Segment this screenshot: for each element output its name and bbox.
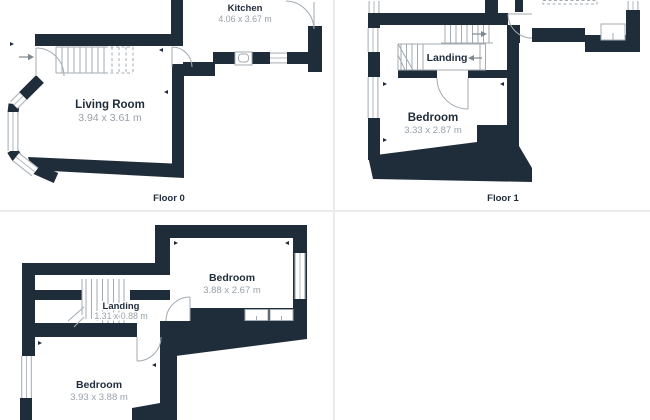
staircase-up — [441, 25, 493, 43]
room-name: Landing — [427, 52, 468, 64]
room-dims: 3.93 x 3.88 m — [70, 392, 128, 403]
floor1-walls — [368, 0, 640, 182]
room-dims: 3.94 x 3.61 m — [78, 112, 142, 124]
floor-plan-1: Landing Bedroom 3.33 x 2.87 m Floor 1 — [333, 0, 650, 211]
dashed-fixture — [543, 1, 597, 5]
room-name: Living Room — [75, 99, 145, 111]
kitchen-top-door — [286, 1, 314, 29]
room-name: Bedroom — [76, 379, 122, 391]
floor-plan-2: Bedroom 3.88 x 2.67 m Landing 1.31 x 0.8… — [0, 211, 333, 420]
floor-plan-0: Kitchen 4.06 x 3.67 m Living Room 3.94 x… — [0, 0, 333, 211]
floorplan-sheet: Kitchen 4.06 x 3.67 m Living Room 3.94 x… — [0, 0, 650, 420]
floor-label: Floor 1 — [487, 193, 519, 204]
sink — [601, 24, 625, 40]
room-name: Bedroom — [209, 272, 255, 284]
floor0-walls — [12, 0, 322, 178]
bedroom-door — [437, 78, 468, 109]
entry-door — [36, 48, 64, 76]
entry-arrow-icon — [19, 54, 34, 60]
room-dims: 1.31 x 0.88 m — [94, 311, 147, 321]
room-dims: 3.33 x 2.87 m — [404, 125, 462, 136]
room-dims: 3.88 x 2.67 m — [203, 285, 261, 296]
floor2-walls — [20, 225, 307, 420]
room-dims: 4.06 x 3.67 m — [218, 14, 271, 24]
floor-label: Floor 0 — [153, 193, 185, 204]
bedroom-door-bottom — [137, 337, 161, 361]
kitchen-sink — [235, 52, 252, 65]
bedroom-door-top — [166, 297, 190, 321]
room-name: Bedroom — [408, 112, 458, 124]
room-name: Kitchen — [228, 3, 263, 14]
staircase — [56, 47, 133, 73]
